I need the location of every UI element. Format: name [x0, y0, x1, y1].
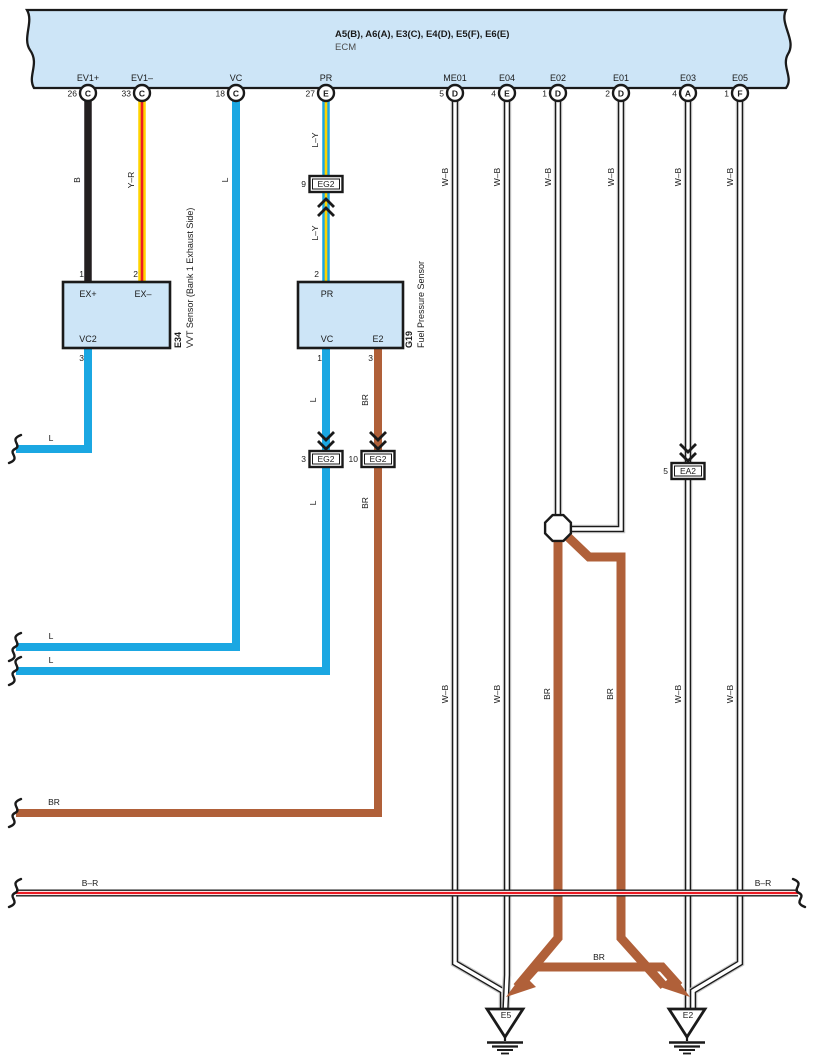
ecm-pin-label-pr: PR [320, 73, 333, 83]
wire-label-l: L [49, 433, 54, 443]
fps-pin-vc: VC [321, 334, 334, 344]
wire-label-w-b: W–B [673, 167, 683, 186]
ecm-name: ECM [335, 42, 356, 53]
pin-connector-letter: E [323, 89, 329, 99]
wire-label-l-y: L–Y [310, 132, 320, 147]
ecm-pin-label-ev1m: EV1– [131, 73, 153, 83]
pin-connector-letter: C [85, 89, 91, 99]
wire-label-b: B [72, 177, 82, 183]
pin-number: 33 [122, 89, 132, 99]
connector-eg2-e2-label: EG2 [369, 454, 386, 464]
wire-color-labels-vertical: B Y–R L L–Y L–Y L BR L BR W–B W–B W–B W–… [72, 132, 735, 703]
wire-stroke-outer [455, 101, 503, 1009]
ground-code: E2 [683, 1010, 694, 1020]
wire-label-w-b: W–B [673, 684, 683, 703]
connector-ea2-label: EA2 [680, 466, 696, 476]
wire-fps-vc-blue [16, 348, 326, 671]
pin-connector-letter: D [618, 89, 624, 99]
wire-label-l-y: L–Y [310, 225, 320, 240]
wire-stroke-inner [693, 101, 740, 1009]
wire-stroke-inner [455, 101, 503, 1009]
wire-e05 [693, 101, 740, 1009]
wire-me01 [455, 101, 503, 1009]
vvt-pin-ex-minus: EX– [134, 289, 151, 299]
wire-label-l: L [49, 631, 54, 641]
pin-number: 1 [724, 89, 729, 99]
wire-stroke-inner [506, 101, 508, 1009]
wire-label-w-b: W–B [725, 684, 735, 703]
connector-eg2-pr-pin: 9 [301, 179, 306, 189]
vvt-sensor-block: EX+ EX– VC2 1 2 3 E34 VVT Sensor (Bank 1… [63, 208, 195, 363]
pin-number: 4 [672, 89, 677, 99]
ecm-pin-label-e04: E04 [499, 73, 515, 83]
connector-ea2-pin: 5 [663, 466, 668, 476]
pin-number: 5 [439, 89, 444, 99]
fps-sensor-box [298, 282, 403, 348]
wiring-diagram: A5(B), A6(A), E3(C), E4(D), E5(F), E6(E)… [0, 0, 817, 1063]
wire-label-l: L [308, 500, 318, 505]
ecm-pin-label-e03: E03 [680, 73, 696, 83]
ecm-pin-label-me01: ME01 [443, 73, 467, 83]
ecm-pin-label-e02: E02 [550, 73, 566, 83]
connector-eg2-e2-pin: 10 [349, 454, 359, 464]
ground-e5: E5 [487, 1009, 523, 1054]
ecm-pin-label-e05: E05 [732, 73, 748, 83]
wire-stroke-inner [572, 101, 621, 529]
pin-connector-letter: E [504, 89, 510, 99]
wire-e04 [506, 101, 508, 1009]
wire-junction-brown-right [566, 535, 664, 986]
junction-node [545, 515, 571, 541]
wire-label-br: BR [48, 797, 60, 807]
wire-label-w-b: W–B [492, 167, 502, 186]
fps-pin-number-1: 1 [317, 353, 322, 363]
vvt-pin-number-1: 1 [79, 269, 84, 279]
pin-connector-letter: C [233, 89, 239, 99]
wire-stroke-mid [455, 101, 503, 1009]
pin-number: 26 [68, 89, 78, 99]
pin-connector-letter: D [452, 89, 458, 99]
ecm-block: A5(B), A6(A), E3(C), E4(D), E5(F), E6(E)… [27, 10, 791, 88]
pin-number: 18 [216, 89, 226, 99]
vvt-pin-ex-plus: EX+ [79, 289, 96, 299]
wire-stroke-outer [693, 101, 740, 1009]
wire-label-w-b: W–B [440, 684, 450, 703]
fps-sensor-code: G19 [404, 331, 414, 348]
wire-stroke-mid [693, 101, 740, 1009]
wires [16, 101, 740, 1009]
pin-number: 2 [605, 89, 610, 99]
vvt-sensor-name: VVT Sensor (Bank 1 Exhaust Side) [185, 208, 195, 348]
wire-stroke-mid [572, 101, 621, 529]
wire-label-b-r: B–R [755, 878, 772, 888]
fps-pin-pr: PR [321, 289, 334, 299]
fps-pin-number-2: 2 [314, 269, 319, 279]
wire-label-br: BR [542, 688, 552, 700]
pin-connector-letter: A [685, 89, 691, 99]
wire-e01 [572, 101, 621, 529]
wire-stroke-outer [572, 101, 621, 529]
vvt-pin-number-2: 2 [133, 269, 138, 279]
fps-pin-number-3: 3 [368, 353, 373, 363]
vvt-sensor-code: E34 [173, 332, 183, 348]
ground-e2: E2 [669, 1009, 705, 1054]
ecm-title: A5(B), A6(A), E3(C), E4(D), E5(F), E6(E) [335, 29, 509, 40]
wire-label-y-r: Y–R [126, 172, 136, 189]
wire-label-w-b: W–B [440, 167, 450, 186]
pin-number: 4 [491, 89, 496, 99]
pin-number: 27 [306, 89, 316, 99]
wire-label-w-b: W–B [492, 684, 502, 703]
pin-connector-letter: D [555, 89, 561, 99]
wire-junction-brown-left [517, 540, 558, 987]
wire-label-w-b: W–B [543, 167, 553, 186]
ecm-pin-label-ev1p: EV1+ [77, 73, 99, 83]
wire-label-b-r: B–R [82, 878, 99, 888]
pin-connector-letter: F [737, 89, 742, 99]
wire-label-br: BR [360, 394, 370, 406]
ecm-pin-label-vc: VC [230, 73, 243, 83]
wire-label-br: BR [593, 952, 605, 962]
vvt-pin-vc2: VC2 [79, 334, 97, 344]
connector-eg2-vc-pin: 3 [301, 454, 306, 464]
wire-color-labels-horizontal: L L L BR B–R B–R BR [48, 433, 771, 962]
wire-label-br: BR [605, 688, 615, 700]
connector-eg2-vc-label: EG2 [317, 454, 334, 464]
fps-sensor-name: Fuel Pressure Sensor [416, 261, 426, 348]
fps-pin-e2: E2 [372, 334, 383, 344]
wire-label-l: L [49, 655, 54, 665]
wire-label-l: L [220, 177, 230, 182]
ecm-pin-label-e01: E01 [613, 73, 629, 83]
pin-connector-letter: C [139, 89, 145, 99]
wire-label-w-b: W–B [725, 167, 735, 186]
connector-eg2-pr-label: EG2 [317, 179, 334, 189]
ground-code: E5 [501, 1010, 512, 1020]
wire-label-w-b: W–B [606, 167, 616, 186]
fuel-pressure-sensor-block: PR VC E2 2 1 3 G19 Fuel Pressure Sensor [298, 261, 426, 363]
wire-label-br: BR [360, 497, 370, 509]
pin-number: 1 [542, 89, 547, 99]
vvt-pin-number-3: 3 [79, 353, 84, 363]
wire-label-l: L [308, 397, 318, 402]
